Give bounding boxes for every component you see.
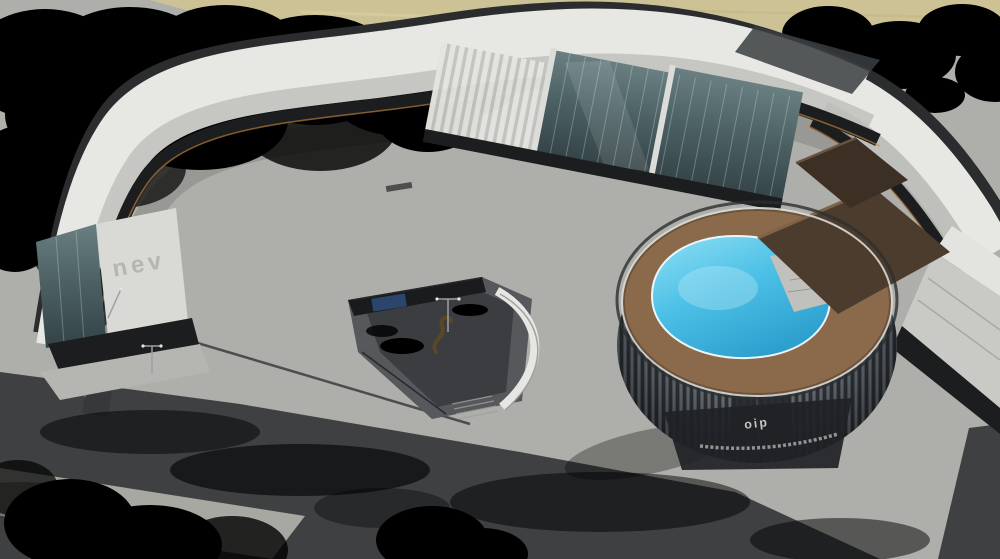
planter <box>380 338 424 354</box>
architectural-rendering: nev <box>0 0 1000 559</box>
left-wing-glass <box>36 224 106 348</box>
planter <box>366 325 398 337</box>
drum-logo: oip <box>743 415 769 432</box>
render-canvas: nev <box>0 0 1000 559</box>
planter <box>452 304 488 316</box>
